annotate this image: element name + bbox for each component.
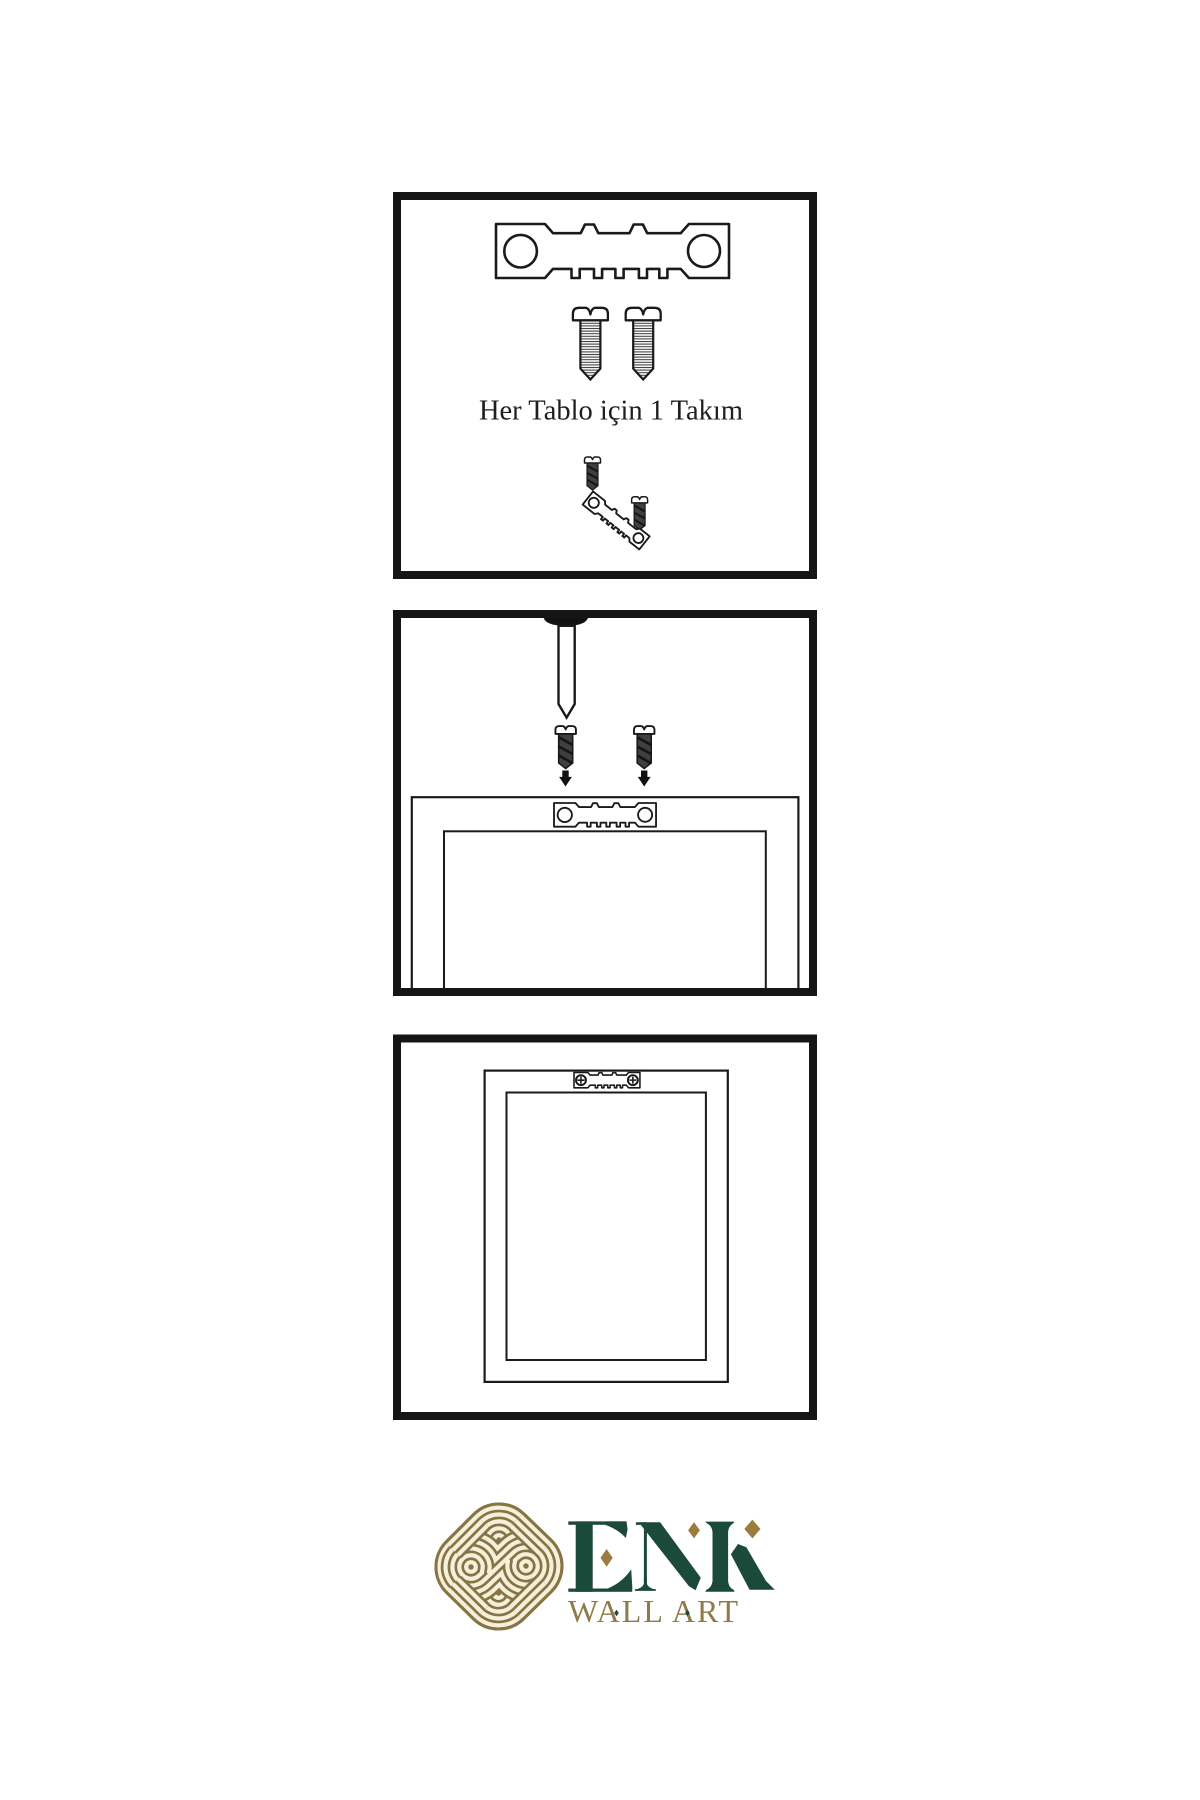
svg-text:Her Tablo için 1 Takım: Her Tablo için 1 Takım — [479, 396, 743, 427]
svg-text:WALL ART: WALL ART — [568, 1593, 740, 1629]
